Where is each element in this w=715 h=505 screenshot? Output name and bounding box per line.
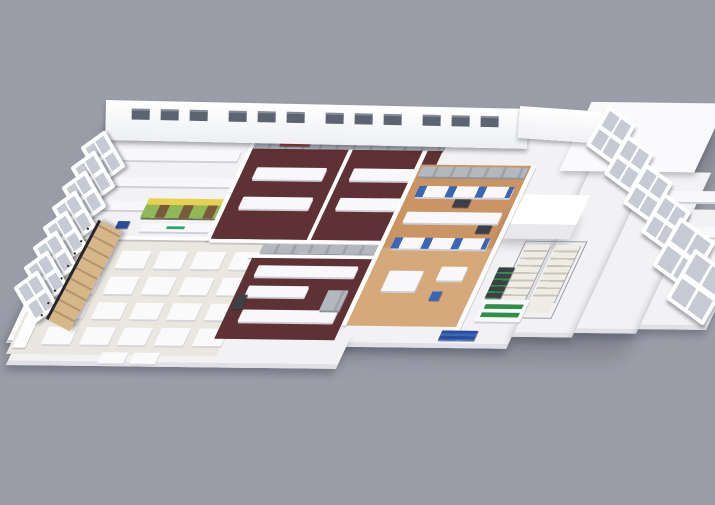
clerestory-window [258,111,276,122]
stainless-hood-row [418,166,529,177]
kitchen-counter [253,265,358,277]
blue-pallet-stack [438,330,479,341]
isometric-facility-render [0,0,715,505]
clerestory-window [384,114,402,125]
classroom-table [116,328,153,346]
lab-bench-blue [390,237,490,249]
cart-green-shelf [480,312,520,317]
clerestory-window-row [132,109,509,128]
clerestory-window [355,113,373,124]
storefront-counter [139,223,213,232]
clerestory-window [161,109,179,120]
storefront-logo [166,226,185,229]
clerestory-window [452,115,470,126]
classroom-table [178,277,215,295]
clerestory-window [326,113,344,124]
clerestory-window [132,109,150,120]
kitchen-counter [244,286,309,298]
classroom-table [129,353,160,364]
clerestory-window [423,115,441,126]
classroom-table [79,327,116,345]
classroom-table [140,277,177,295]
classroom-table [154,328,191,346]
kitchen-bench [252,167,328,180]
lab-bench-blue [414,186,514,198]
kitchen-bench [238,197,314,210]
clerestory-window [229,111,247,122]
clerestory-window [481,116,499,127]
nw-lab-bench [107,149,242,162]
cart-green-shelf [484,304,524,309]
classroom-table [97,352,128,363]
kitchen-pass-counter [237,310,338,323]
classroom-table [91,302,128,320]
classroom-table [128,302,165,320]
classroom-table [102,276,139,294]
clerestory-window [287,112,305,123]
classroom-table [152,251,189,269]
clerestory-window [190,110,208,121]
classroom-table [190,252,227,270]
corridor-counter-row [259,244,383,255]
lab-bench [402,212,502,224]
classroom-table [114,251,151,269]
classroom-table [41,327,78,345]
classroom-table [166,303,203,321]
